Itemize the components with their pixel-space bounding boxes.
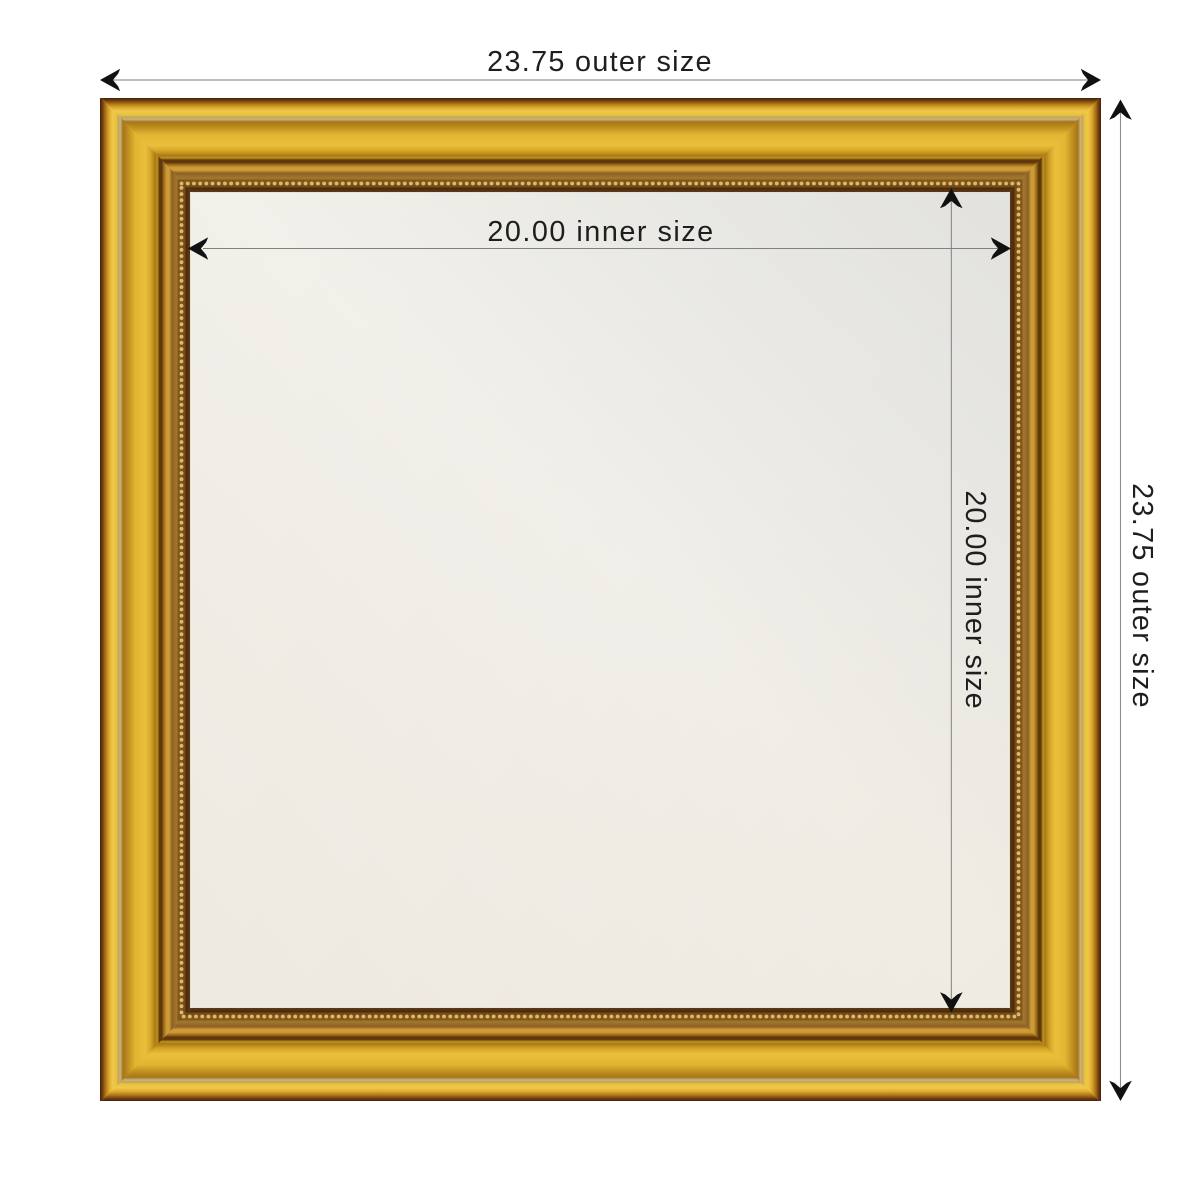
svg-text:20.00 inner size: 20.00 inner size (487, 216, 714, 248)
svg-text:23.75 outer size: 23.75 outer size (1126, 483, 1158, 709)
svg-text:23.75 outer size: 23.75 outer size (487, 46, 713, 78)
svg-text:20.00 inner size: 20.00 inner size (959, 490, 991, 709)
